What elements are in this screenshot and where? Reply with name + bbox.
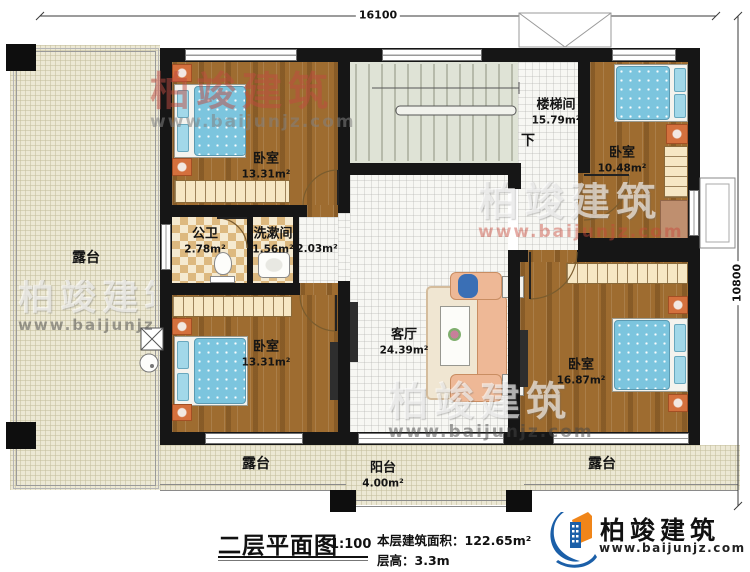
room-label-stairwell: 楼梯间 15.79m²: [532, 98, 581, 129]
wall-segment: [338, 48, 350, 213]
wall-segment: [508, 163, 521, 189]
bed-pillow: [674, 356, 686, 384]
terrace-right-railing: [524, 484, 738, 491]
door-opening-floor: [300, 283, 338, 295]
wall-segment: [338, 281, 350, 432]
room-name: 客厅: [380, 328, 429, 345]
wall-segment: [160, 205, 307, 217]
wall-segment: [160, 283, 300, 295]
nightstand: [668, 296, 688, 314]
floor-height-value: 3.3m: [415, 553, 450, 568]
dresser: [660, 200, 688, 240]
room-name: 洗漱间: [252, 227, 293, 244]
toilet-tank: [210, 276, 235, 283]
bed-pillow: [177, 341, 189, 369]
plan-scale: 1:100: [330, 537, 371, 552]
hallway-opening-floor: [338, 213, 350, 281]
wall-segment: [508, 262, 520, 432]
table-flowers: [448, 328, 461, 341]
brand-logo-icon: [544, 508, 598, 568]
window: [205, 433, 303, 444]
person: [458, 274, 478, 298]
door-opening-floor: [578, 173, 590, 233]
door-opening-floor: [307, 205, 338, 217]
window: [382, 49, 482, 61]
room-label-bedroom-tl: 卧室 13.31m²: [242, 152, 291, 183]
room-name: 阳台: [362, 461, 403, 478]
door-opening-floor: [528, 250, 577, 262]
balcony-railing: [352, 500, 512, 507]
room-area: 2.78m²: [184, 244, 225, 258]
title-underline: [218, 556, 368, 558]
room-area: 15.79m²: [532, 115, 581, 129]
sofa-seat: [450, 374, 502, 402]
room-name: 公卫: [184, 227, 225, 244]
room-area: 1.56m²: [252, 244, 293, 258]
room-label-living-room: 客厅 24.39m²: [380, 328, 429, 359]
bed-pillow: [177, 373, 189, 401]
terrace-bottom-railing: [160, 484, 346, 491]
floor-area-label: 本层建筑面积：: [377, 533, 465, 548]
terrace-left-label: 露台: [72, 247, 100, 267]
stair-direction-label: 下: [521, 130, 535, 150]
room-name: 卧室: [242, 152, 291, 169]
bed-blanket: [194, 86, 246, 156]
bed-pillow: [674, 68, 686, 92]
entry-canopy: [519, 13, 611, 47]
title-underline: [218, 560, 368, 561]
room-name: 楼梯间: [532, 98, 581, 115]
balcony-label: 阳台 4.00m²: [362, 461, 403, 492]
nightstand: [172, 64, 192, 82]
dimension-top: 16100: [356, 9, 400, 22]
column: [6, 422, 36, 449]
column: [6, 44, 36, 71]
window: [689, 190, 699, 236]
room-name: 卧室: [598, 146, 647, 163]
terrace-right-label: 露台: [588, 453, 616, 473]
room-area: 10.48m²: [598, 163, 647, 177]
floor-plan: 16100 10800 卧室 13.31m² 楼梯间 15.79m² 下 卧室 …: [0, 0, 750, 572]
wardrobe: [172, 296, 292, 317]
floor-area-value: 122.65m²: [465, 533, 532, 548]
wall-segment: [578, 238, 700, 250]
nightstand: [172, 318, 192, 335]
stair-landing-floor: [518, 62, 578, 250]
window: [553, 433, 689, 444]
dimension-right: 10800: [731, 261, 744, 305]
terrace-left-railing: [16, 51, 156, 486]
room-name: 卧室: [557, 358, 606, 375]
room-label-public-bath: 公卫 2.78m²: [184, 227, 225, 258]
tv: [520, 330, 528, 387]
room-area: 4.00m²: [362, 478, 403, 492]
bed-blanket: [194, 338, 246, 404]
nightstand: [172, 158, 192, 176]
nightstand: [666, 124, 688, 144]
room-area: 13.31m²: [242, 357, 291, 371]
bay-window: [700, 178, 735, 248]
tv: [330, 342, 338, 400]
room-label-bedroom-bl: 卧室 13.31m²: [242, 340, 291, 371]
window: [185, 49, 297, 61]
wardrobe: [174, 180, 290, 203]
nightstand: [172, 404, 192, 421]
room-name: 卧室: [242, 340, 291, 357]
plan-title: 二层平面图: [218, 526, 338, 560]
wardrobe: [566, 263, 688, 284]
wall-segment: [350, 163, 508, 175]
room-area: 24.39m²: [380, 345, 429, 359]
nightstand: [668, 394, 688, 412]
floor-height-label: 层高：: [377, 553, 415, 568]
room-label-hallway: 2.03m²: [296, 243, 337, 257]
room-label-bedroom-tr: 卧室 10.48m²: [598, 146, 647, 177]
brand-url: www.baijunjz.com: [599, 541, 746, 555]
wall-segment: [508, 250, 528, 262]
bed-blanket: [614, 320, 670, 390]
bed-pillow: [177, 90, 189, 118]
room-area: 13.31m²: [242, 169, 291, 183]
window: [161, 224, 171, 270]
room-label-washroom: 洗漱间 1.56m²: [252, 227, 293, 258]
floor-height-row: 层高：3.3m: [377, 550, 450, 569]
room-label-bedroom-br: 卧室 16.87m²: [557, 358, 606, 389]
window: [612, 49, 676, 61]
stairwell-floor: [350, 62, 518, 163]
bed-blanket: [616, 66, 670, 120]
terrace-bottom-label: 露台: [242, 453, 270, 473]
bed-pillow: [177, 124, 189, 152]
bed-pillow: [674, 324, 686, 352]
bed-pillow: [674, 94, 686, 118]
room-area: 2.03m²: [296, 243, 337, 257]
balcony-door: [358, 433, 504, 444]
wall-segment: [577, 250, 700, 262]
wardrobe: [664, 146, 688, 198]
room-area: 16.87m²: [557, 375, 606, 389]
column: [330, 490, 356, 512]
tv: [350, 302, 358, 362]
floor-area-row: 本层建筑面积：122.65m²: [377, 530, 531, 549]
column: [506, 490, 532, 512]
